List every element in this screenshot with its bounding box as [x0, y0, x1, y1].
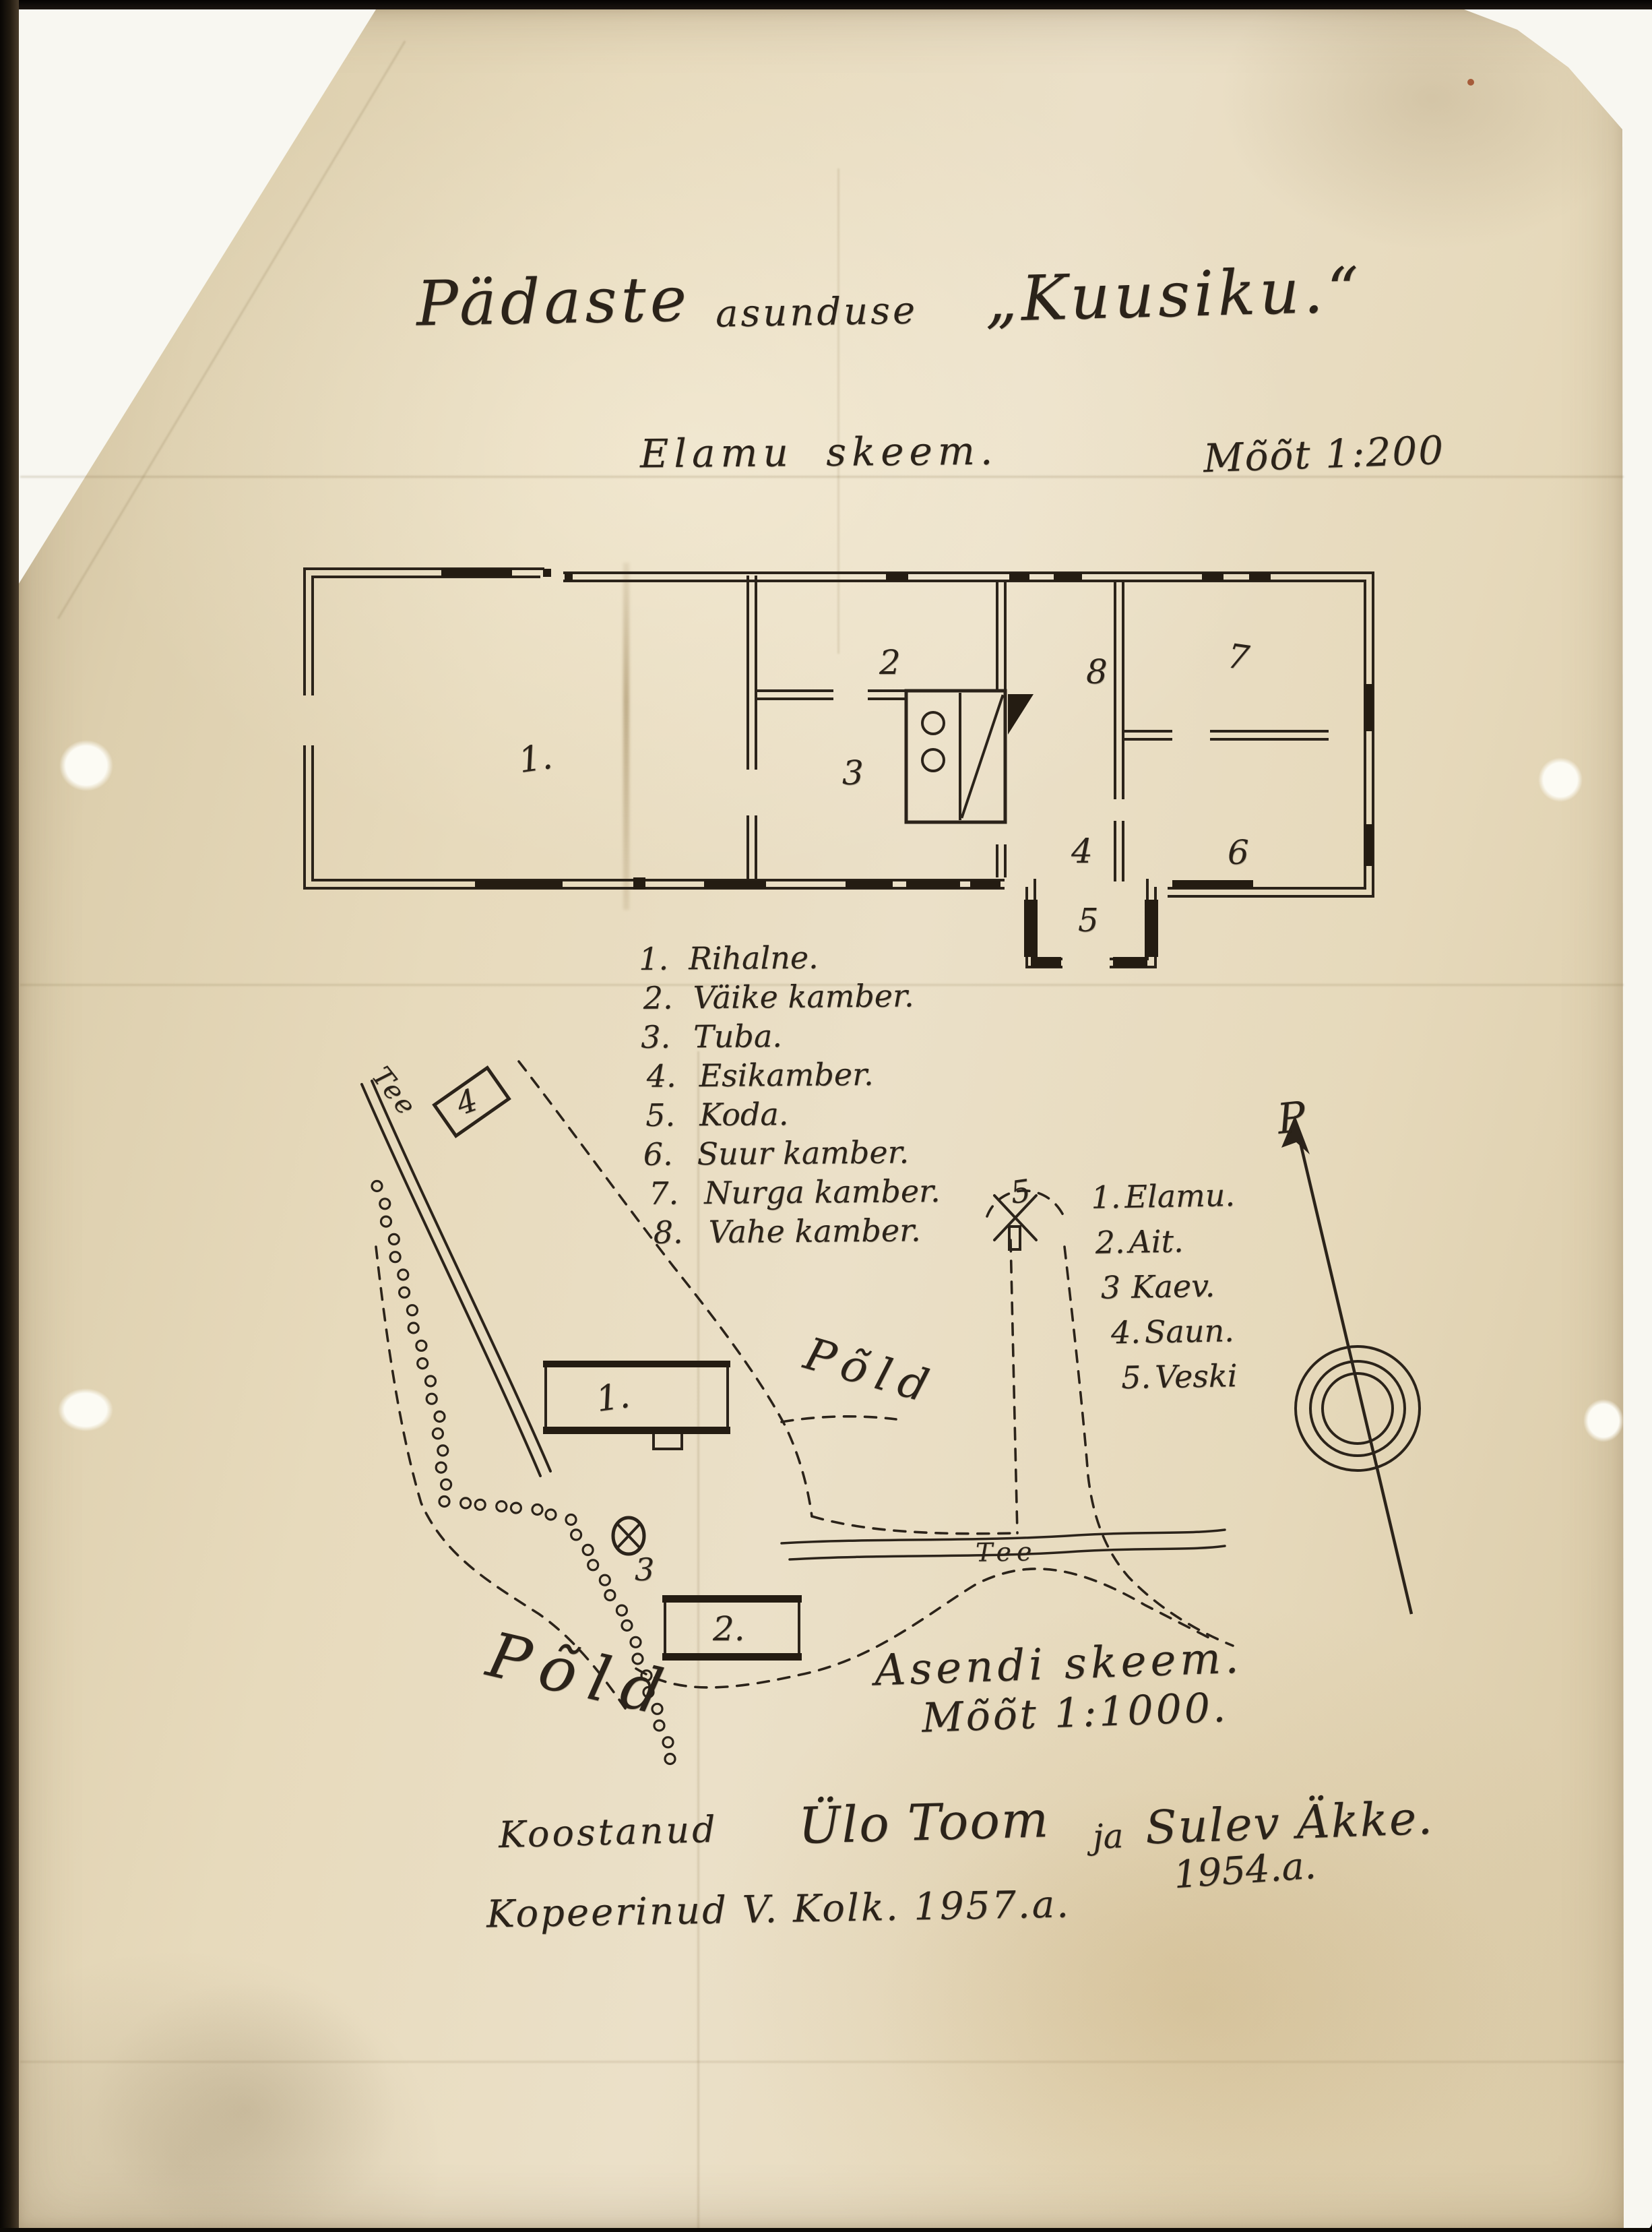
floor-plan-drawing: [296, 559, 1381, 1004]
legend-name: Elamu.: [1124, 1179, 1235, 1212]
legend-num: 3: [1100, 1272, 1120, 1303]
building-heavy-walls: [543, 1361, 802, 1661]
legend-num: 5.: [1121, 1361, 1151, 1393]
legend-num: 4.: [1111, 1317, 1141, 1348]
room-label-8: 8: [1086, 655, 1108, 689]
credits-copied-line: Kopeerinud V. Kolk. 1957.a.: [486, 1886, 1071, 1933]
north-label: P: [1275, 1096, 1308, 1140]
site-plan-caption: Asendi skeem.: [874, 1636, 1243, 1692]
punch-hole-right-lower: [1583, 1399, 1624, 1442]
legend-name: Saun.: [1144, 1315, 1234, 1347]
legend-item: 3Kaev.: [1092, 1270, 1237, 1317]
site-plan-scale-label: Mõõt 1:1000.: [921, 1687, 1229, 1739]
legend-num: 2.: [643, 983, 672, 1014]
legend-item: 2.Ait.: [1091, 1224, 1236, 1272]
road-line-1: [362, 1084, 540, 1476]
house-marker: 1.: [594, 1378, 632, 1417]
barn-marker: 2.: [713, 1612, 745, 1646]
north-arrow: [1267, 1088, 1455, 1634]
house-plan-scale-label: Mõõt 1:200: [1203, 431, 1445, 478]
room-label-3: 3: [842, 756, 864, 790]
room-label-4: 4: [1071, 834, 1093, 868]
dwelling-building: [546, 1365, 728, 1449]
wall-rooms-2-3: [756, 691, 906, 699]
site-plan-legend: 1.Elamu. 2.Ait. 3Kaev. 4.Saun. 5.Veski: [1091, 1179, 1238, 1408]
legend-item: 5.Veski: [1094, 1360, 1239, 1408]
legend-item: 1.Elamu.: [1091, 1179, 1236, 1227]
legend-name: Rihalne.: [689, 942, 819, 974]
legend-item: 2.Väike kamber.: [639, 980, 939, 1022]
legend-name: Väike kamber.: [693, 980, 914, 1013]
mill-marker: 5: [1009, 1175, 1032, 1208]
well-marker: 3: [635, 1554, 654, 1585]
document-title-word1: Pädaste: [416, 268, 691, 335]
legend-num: 1.: [1091, 1181, 1121, 1213]
scanned-document: Pädaste asunduse „Kuusiku.“ Elamu skeem.…: [0, 0, 1652, 2232]
wall-left: [305, 569, 313, 888]
credits-prefix: Koostanud: [498, 1811, 718, 1854]
well-symbol: [613, 1518, 644, 1554]
document-title-word3: „Kuusiku.“: [984, 259, 1364, 332]
room-label-5: 5: [1078, 904, 1099, 937]
legend-name: Ait.: [1129, 1226, 1184, 1258]
scan-edge-top: [0, 0, 1652, 9]
stove-outline: [906, 691, 1005, 822]
stove-burner-1: [922, 712, 944, 734]
legend-num: 1.: [639, 943, 668, 974]
punch-hole-left-lower: [58, 1388, 113, 1431]
wall-rooms-7-6: [1123, 731, 1327, 739]
punch-hole-left-upper: [59, 740, 113, 791]
road-label-lower: Tee: [976, 1539, 1038, 1565]
legend-item: 4.Saun.: [1093, 1315, 1238, 1363]
credits-author1: Ülo Toom: [798, 1795, 1050, 1851]
stove-burner-2: [922, 749, 944, 771]
credits-year: 1954.a.: [1172, 1847, 1317, 1895]
credits-conjunction: ja: [1092, 1819, 1124, 1854]
scan-edge-left: [0, 0, 19, 2232]
wall-partition-1: [748, 577, 756, 880]
document-title-word2: asunduse: [716, 292, 918, 333]
scan-edge-bottom: [0, 2228, 1652, 2232]
house-plan-caption: Elamu skeem.: [640, 431, 998, 474]
punch-hole-right-upper: [1538, 757, 1583, 802]
room-label-1: 1.: [517, 739, 554, 778]
room-label-7: 7: [1226, 639, 1251, 675]
legend-item: 1.Rihalne.: [639, 941, 939, 983]
room-label-2: 2: [879, 646, 901, 679]
room-label-6: 6: [1228, 836, 1249, 869]
legend-name: Veski: [1155, 1360, 1238, 1392]
stove-chimney-mark: [1008, 694, 1034, 735]
legend-num: 2.: [1095, 1227, 1125, 1258]
credits-author2: Sulev Äkke.: [1145, 1796, 1434, 1852]
legend-name: Kaev.: [1131, 1270, 1215, 1303]
stove-diagonal: [962, 696, 1003, 817]
